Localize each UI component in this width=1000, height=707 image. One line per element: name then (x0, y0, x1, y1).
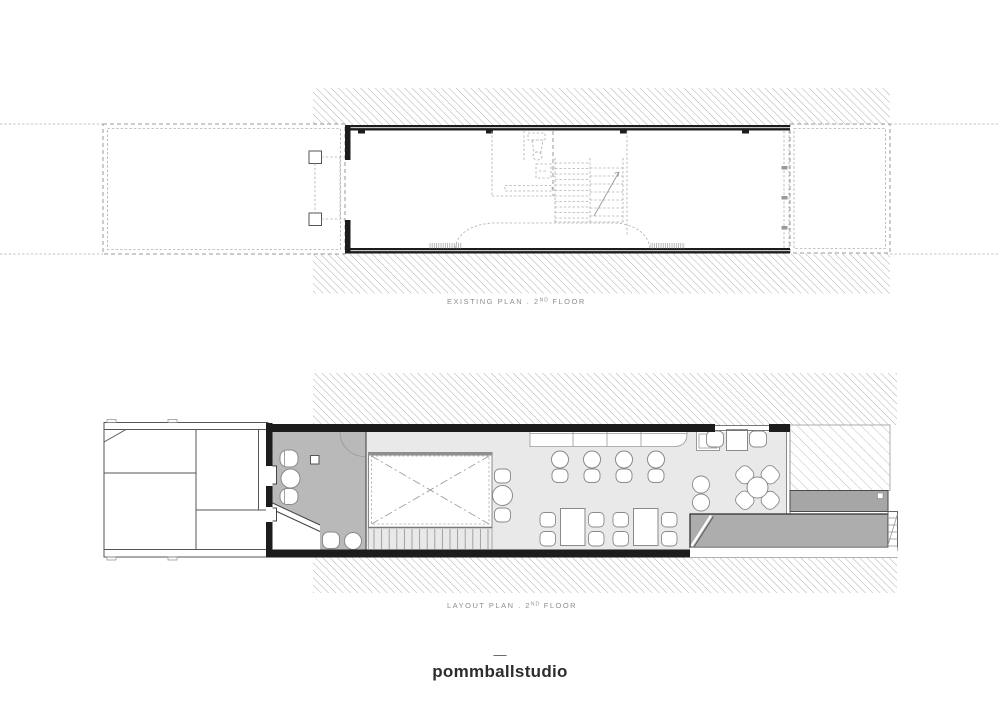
bar-counter (530, 430, 687, 447)
front-terrace (104, 420, 268, 561)
interior-partitions (492, 131, 627, 235)
floor-drain (311, 456, 320, 465)
drawing-sheet: EXISTING PLAN . 2ND FLOOR LAYOUT PLAN . … (0, 0, 1000, 707)
rear-glass-wall (787, 432, 791, 514)
dining-table-cluster-2 (613, 509, 677, 547)
neighbor-hatch-bottom (313, 254, 890, 294)
neighbor-hatch-top (313, 88, 890, 125)
front-roof-dashed-area (103, 124, 345, 254)
door-sill-right (650, 243, 685, 249)
footer-divider: — (0, 648, 1000, 661)
entry-ramp (690, 514, 888, 548)
dining-table-cluster-1 (540, 509, 604, 547)
rear-square-table (707, 430, 767, 451)
void-side-table (493, 469, 513, 522)
rear-window-wall (782, 131, 790, 248)
neighbor-hatch-bottom (313, 558, 897, 594)
building-walls (345, 125, 790, 254)
wc-toilet (528, 133, 551, 178)
rear-deck (790, 425, 890, 491)
studio-logo: pommballstudio (0, 662, 1000, 682)
layout-plan (104, 373, 898, 593)
existing-plan-caption: EXISTING PLAN . 2ND FLOOR (447, 297, 586, 306)
bathroom-zone (270, 432, 367, 553)
stair-direction-arrow (594, 172, 619, 216)
stair-treads-left (555, 163, 590, 218)
ramp-end-stair (888, 512, 898, 551)
curved-wall-below (429, 223, 685, 249)
layout-plan-caption: LAYOUT PLAN . 2ND FLOOR (447, 601, 577, 610)
staircase (555, 158, 623, 222)
door-sill-left (429, 243, 462, 249)
existing-plan (0, 88, 1000, 294)
rear-roof-dashed-area (790, 124, 890, 253)
front-columns (309, 151, 345, 226)
neighbor-hatch-top (313, 373, 897, 425)
void-opening (369, 453, 493, 528)
planter (790, 491, 888, 512)
lot-boundary-lines (0, 124, 1000, 254)
